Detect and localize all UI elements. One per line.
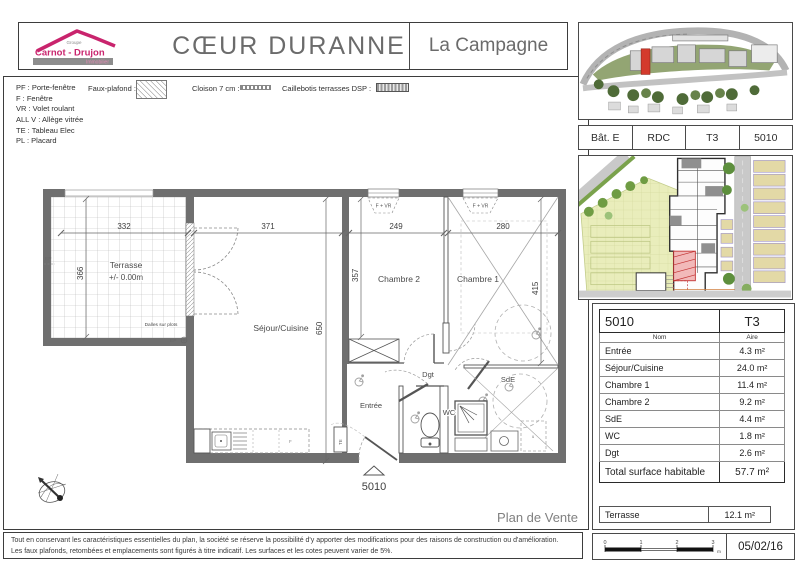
area-table-panel: 5010 T3 Nom Aire Entrée 4.3 m² Séjour/Cu… <box>592 303 795 530</box>
dim-chambre1-width: 280 <box>496 222 510 231</box>
unit-floor: RDC <box>632 126 686 149</box>
window-label: F + VR <box>376 204 392 210</box>
terrace-value: 12.1 m² <box>709 507 771 523</box>
entrance-marker: 5010 <box>362 466 386 493</box>
total-row: Total surface habitable 57.7 m² <box>600 462 785 483</box>
room-name: SdE <box>600 411 720 428</box>
page-title: CŒUR DURANNE <box>169 23 409 69</box>
unit-summary-row: Bât. E RDC T3 5010 <box>578 125 793 150</box>
dim-terrace-width: 332 <box>117 222 131 231</box>
plan-date: 05/02/16 <box>726 534 794 559</box>
shower-icon <box>455 401 487 435</box>
site-plan-graphic <box>579 156 791 298</box>
room-area: 11.4 m² <box>720 377 785 394</box>
svg-text:u: u <box>532 434 535 439</box>
dim-chambre2-height: 357 <box>351 268 360 282</box>
dalles-label: Dalles sur plots <box>145 322 178 328</box>
terrace-label: Terrasse <box>600 507 709 523</box>
dim-chambre2-width: 249 <box>389 222 403 231</box>
table-row: Chambre 2 9.2 m² <box>600 394 785 411</box>
room-entree-label: Entrée <box>360 401 382 410</box>
room-area: 4.3 m² <box>720 343 785 360</box>
scale-bar-graphic: 0 1 2 3 m <box>597 537 723 557</box>
scale-bar: 0 1 2 3 m <box>593 534 726 559</box>
area-table: 5010 T3 Nom Aire Entrée 4.3 m² Séjour/Cu… <box>599 309 785 483</box>
legend-abbr-line: F : Fenêtre <box>16 94 83 105</box>
total-label: Total surface habitable <box>600 462 720 483</box>
room-terrasse-label: Terrasse <box>110 260 143 270</box>
ep-label: EP <box>170 338 176 344</box>
table-row: WC 1.8 m² <box>600 428 785 445</box>
room-sde-label: SdE <box>501 375 515 384</box>
area-table-type: T3 <box>720 310 785 333</box>
table-row: Chambre 1 11.4 m² <box>600 377 785 394</box>
compass-icon <box>37 474 68 506</box>
site-plan-map <box>578 155 793 300</box>
disclaimer-line1: Tout en conservant les caractéristiques … <box>11 536 575 547</box>
legend-abbr-line: PL : Placard <box>16 136 83 147</box>
ep-label: EP <box>45 256 51 262</box>
room-name: Séjour/Cuisine <box>600 360 720 377</box>
dim-sejour-width: 371 <box>261 222 275 231</box>
window-chambre1: F + VR <box>463 189 498 213</box>
area-table-unit: 5010 <box>600 310 720 333</box>
room-dgt-label: Dgt <box>422 370 435 379</box>
logo-group-text: Groupe <box>66 40 82 45</box>
stove-icon <box>233 433 247 449</box>
wheelchair-icon <box>411 411 420 423</box>
room-chambre1-label: Chambre 1 <box>457 274 499 284</box>
legend-abbreviations: PF : Porte-fenêtre F : Fenêtre VR : Vole… <box>16 83 83 147</box>
room-area: 1.8 m² <box>720 428 785 445</box>
disclaimer: Tout en conservant les caractéristiques … <box>3 532 583 559</box>
toilet-icon <box>421 413 439 447</box>
svg-text:F: F <box>289 439 292 444</box>
room-name: WC <box>600 428 720 445</box>
room-name: Chambre 2 <box>600 394 720 411</box>
legend-caillebotis-label: Caillebotis terrasses DSP : <box>282 84 371 93</box>
legend-abbr-line: TE : Tableau Elec <box>16 126 83 137</box>
aerial-map-graphic <box>579 23 791 118</box>
wheelchair-icon <box>355 374 364 386</box>
room-name: Dgt <box>600 445 720 462</box>
room-area: 2.6 m² <box>720 445 785 462</box>
terrace-railing <box>65 190 153 196</box>
room-area: 4.4 m² <box>720 411 785 428</box>
legend-faux-plafond-label: Faux-plafond : <box>88 84 136 93</box>
table-row: SdE 4.4 m² <box>600 411 785 428</box>
logo-tagline-text: Immobilier <box>86 60 109 66</box>
disclaimer-line2: Les faux plafonds, retombées et emplacem… <box>11 547 575 558</box>
te-panel: TE <box>334 427 347 452</box>
svg-text:m: m <box>717 549 721 554</box>
room-area: 24.0 m² <box>720 360 785 377</box>
kitchen-counter: F <box>194 429 309 453</box>
room-wc-label: WC <box>443 408 456 417</box>
plan-de-vente-page: Groupe Carnot - Drujon Immobilier CŒUR D… <box>0 0 800 566</box>
header: Groupe Carnot - Drujon Immobilier CŒUR D… <box>18 22 568 70</box>
french-door <box>194 228 238 314</box>
window-chambre2: F + VR <box>368 189 399 213</box>
unit-number-label: 5010 <box>362 481 386 493</box>
highlighted-building <box>641 49 650 75</box>
legend-abbr-line: VR : Volet roulant <box>16 104 83 115</box>
carnot-drujon-logo: Groupe Carnot - Drujon Immobilier <box>19 23 169 69</box>
caillebotis-swatch <box>376 83 409 92</box>
col-header-nom: Nom <box>600 333 720 343</box>
table-row: Séjour/Cuisine 24.0 m² <box>600 360 785 377</box>
room-name: Chambre 1 <box>600 377 720 394</box>
svg-text:TE: TE <box>338 439 343 445</box>
floor-plan: F + VR F + VR <box>31 173 587 513</box>
scale-and-date: 0 1 2 3 m 05/02/16 <box>592 533 795 560</box>
plan-type-label: Plan de Vente <box>497 510 578 525</box>
col-header-aire: Aire <box>720 333 785 343</box>
table-row: Entrée 4.3 m² <box>600 343 785 360</box>
dim-sejour-height: 650 <box>315 321 324 335</box>
program-name: La Campagne <box>409 23 567 69</box>
room-chambre2-label: Chambre 2 <box>378 274 420 284</box>
dim-chambre1-height: 415 <box>531 281 540 295</box>
terrace-table: Terrasse 12.1 m² <box>599 506 771 523</box>
logo-name-text: Carnot - Drujon <box>35 48 105 59</box>
room-area: 9.2 m² <box>720 394 785 411</box>
unit-type: T3 <box>685 126 739 149</box>
plan-sheet: PF : Porte-fenêtre F : Fenêtre VR : Vole… <box>3 76 589 530</box>
site-aerial-map <box>578 22 793 120</box>
room-sejour-label: Séjour/Cuisine <box>253 323 309 333</box>
faux-plafond-swatch <box>136 80 167 99</box>
table-row: Dgt 2.6 m² <box>600 445 785 462</box>
window-label: F + VR <box>473 204 489 210</box>
unit-number: 5010 <box>739 126 793 149</box>
legend-abbr-line: ALL V : Allège vitrée <box>16 115 83 126</box>
total-value: 57.7 m² <box>720 462 785 483</box>
cloison-swatch <box>240 85 271 90</box>
legend-abbr-line: PF : Porte-fenêtre <box>16 83 83 94</box>
program-name-text: La Campagne <box>429 35 548 57</box>
room-name: Entrée <box>600 343 720 360</box>
placard <box>349 339 399 362</box>
logo-graphic: Groupe Carnot - Drujon Immobilier <box>27 24 145 68</box>
dim-terrace-height: 366 <box>76 266 85 280</box>
terrasse-level-label: +/- 0.00m <box>109 273 143 282</box>
legend-cloison-label: Cloison 7 cm : <box>192 84 240 93</box>
unit-building: Bât. E <box>579 126 632 149</box>
